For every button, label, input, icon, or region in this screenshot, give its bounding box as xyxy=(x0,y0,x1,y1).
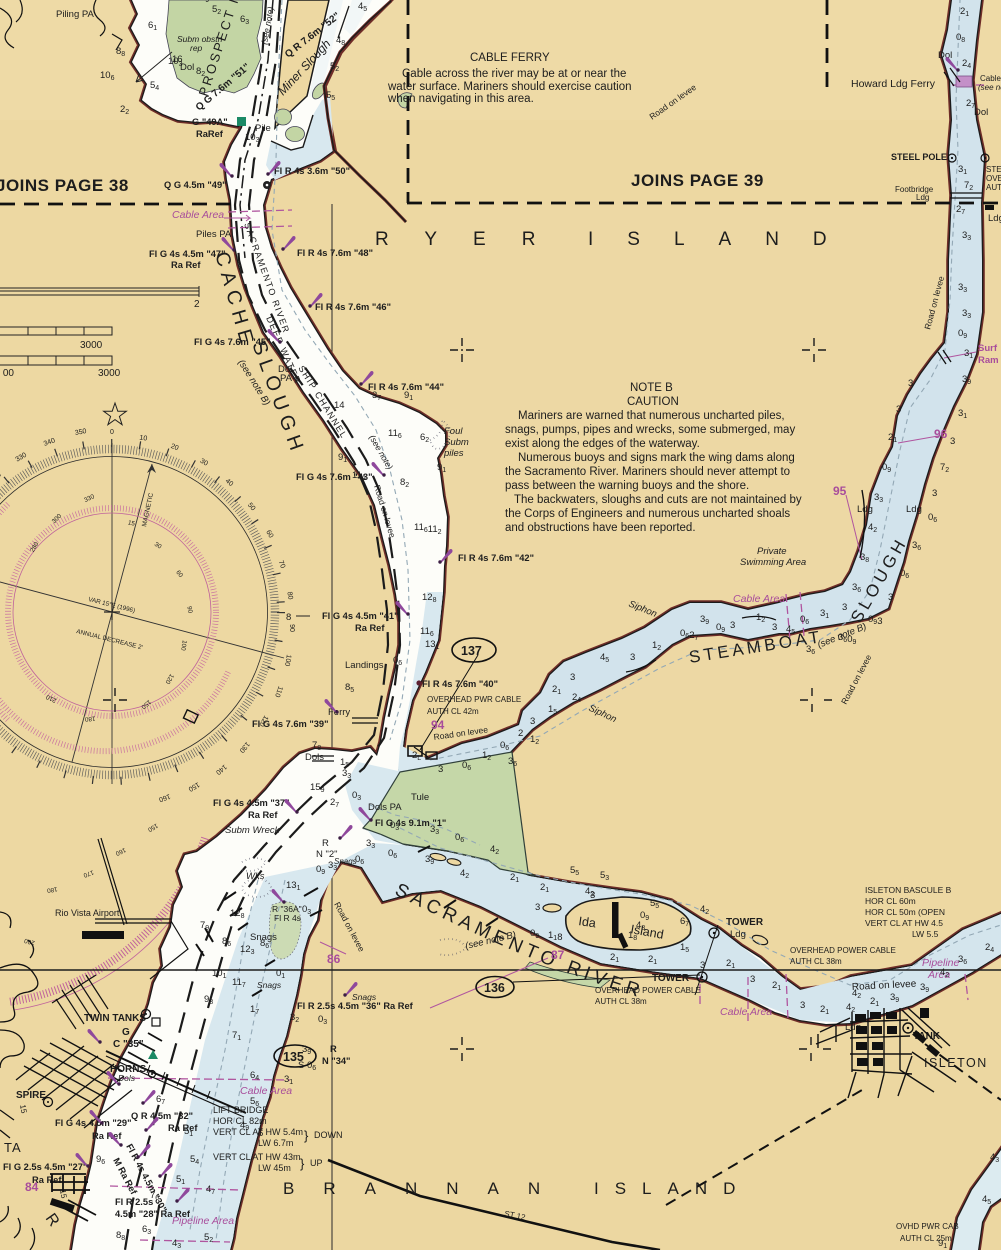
svg-text:CABLE FERRY: CABLE FERRY xyxy=(470,52,550,64)
svg-text:Cable across the river may be: Cable across the river may be at or near… xyxy=(402,68,626,80)
svg-text:R: R xyxy=(330,1044,337,1054)
svg-text:0: 0 xyxy=(110,429,114,436)
svg-text:Fl R 4s 7.6m "48": Fl R 4s 7.6m "48" xyxy=(297,248,373,258)
svg-text:Fl G 2.5s 4.5m "27": Fl G 2.5s 4.5m "27" xyxy=(3,1162,87,1172)
svg-text:Snags: Snags xyxy=(334,857,357,866)
svg-text:3: 3 xyxy=(535,902,540,913)
svg-text:Piling PA: Piling PA xyxy=(56,9,95,20)
svg-text:(see no: (see no xyxy=(978,83,1001,92)
svg-text:3: 3 xyxy=(888,592,893,603)
svg-text:Mariners are warned that num: Mariners are warned that numerous unchar… xyxy=(518,410,785,422)
svg-text:TOWER: TOWER xyxy=(652,973,690,984)
svg-text:Pipeline Area: Pipeline Area xyxy=(172,1215,234,1227)
svg-text:G: G xyxy=(122,1027,130,1038)
svg-text:Subm: Subm xyxy=(444,437,469,448)
svg-text:Foul: Foul xyxy=(444,426,463,437)
svg-text:Cable Area: Cable Area xyxy=(172,209,224,221)
svg-text:Ra Ref: Ra Ref xyxy=(248,810,278,820)
svg-text:Swimming Area: Swimming Area xyxy=(740,557,806,568)
svg-text:}: } xyxy=(304,1128,309,1143)
svg-text:96: 96 xyxy=(934,427,948,441)
svg-text:DOWN: DOWN xyxy=(314,1130,343,1140)
svg-text:10: 10 xyxy=(139,434,148,442)
svg-text:3: 3 xyxy=(730,620,735,631)
svg-text:Fl R 4s 7.6m "46": Fl R 4s 7.6m "46" xyxy=(315,302,391,312)
svg-text:JOINS PAGE 39: JOINS PAGE 39 xyxy=(631,171,764,190)
svg-text:RYER: RYER xyxy=(375,229,571,250)
svg-text:BRANNAN: BRANNAN xyxy=(283,1179,569,1198)
svg-text:ISLETON: ISLETON xyxy=(924,1056,988,1070)
svg-text:95: 95 xyxy=(833,484,847,498)
svg-text:3: 3 xyxy=(438,764,443,775)
svg-text:Snags: Snags xyxy=(250,932,277,943)
svg-text:}: } xyxy=(300,1156,305,1171)
svg-text:3: 3 xyxy=(590,890,595,901)
svg-text:ISLETON BASCULE B: ISLETON BASCULE B xyxy=(865,885,952,895)
svg-text:87: 87 xyxy=(551,948,565,962)
svg-text:Numerous buoys and signs mar: Numerous buoys and signs mark the wing d… xyxy=(518,452,795,464)
svg-text:CAUTION: CAUTION xyxy=(627,396,679,408)
svg-text:Ldg: Ldg xyxy=(988,213,1001,224)
svg-text:HORNS: HORNS xyxy=(110,1064,146,1075)
svg-text:R: R xyxy=(322,838,329,849)
svg-text:90: 90 xyxy=(288,624,295,632)
svg-text:OVERHEAD PWR CABLE: OVERHEAD PWR CABLE xyxy=(427,695,521,704)
svg-text:Ferry: Ferry xyxy=(328,707,350,718)
svg-text:AUTH CL 42m: AUTH CL 42m xyxy=(427,707,479,716)
svg-text:Cable Area: Cable Area xyxy=(733,593,785,605)
svg-text:Dols PA: Dols PA xyxy=(368,802,402,813)
svg-text:PA: PA xyxy=(280,373,293,384)
svg-text:3: 3 xyxy=(700,960,705,971)
svg-text:Fl G 4s 4.5m "29": Fl G 4s 4.5m "29" xyxy=(55,1118,132,1128)
svg-text:Ldg: Ldg xyxy=(916,193,929,202)
svg-text:137: 137 xyxy=(461,644,482,658)
svg-text:C "35": C "35" xyxy=(113,1039,144,1050)
svg-text:HOR CL 60m: HOR CL 60m xyxy=(865,896,916,906)
svg-text:TOWER: TOWER xyxy=(726,917,764,928)
svg-text:JOINS PAGE 38: JOINS PAGE 38 xyxy=(0,176,129,195)
svg-text:Pile: Pile xyxy=(255,123,271,134)
svg-text:TA: TA xyxy=(4,1140,22,1155)
svg-text:OVE: OVE xyxy=(986,174,1001,183)
svg-text:94: 94 xyxy=(431,718,445,732)
svg-text:the Sacramento River. Marine: the Sacramento River. Mariners should ne… xyxy=(505,466,790,478)
svg-text:STE: STE xyxy=(986,165,1001,174)
svg-text:Fl G 4s 4.5m "41": Fl G 4s 4.5m "41" xyxy=(322,611,399,621)
svg-text:OVHD PWR CAB: OVHD PWR CAB xyxy=(896,1222,959,1231)
svg-text:Ram: Ram xyxy=(978,355,999,366)
svg-text:Rio Vista Airport: Rio Vista Airport xyxy=(55,908,120,918)
svg-text:OVERHEAD POWER CABLE: OVERHEAD POWER CABLE xyxy=(595,986,701,995)
svg-text:HOR CL 50m (OPEN: HOR CL 50m (OPEN xyxy=(865,907,945,917)
svg-text:exist along the edges of the w: exist along the edges of the waterway. xyxy=(505,438,700,450)
svg-text:LW 5.5: LW 5.5 xyxy=(912,929,939,939)
svg-text:Ldg: Ldg xyxy=(857,504,873,515)
svg-text:8: 8 xyxy=(286,612,291,623)
svg-text:VERT CL AT HW 43m: VERT CL AT HW 43m xyxy=(213,1152,301,1162)
svg-text:Fl R 4s: Fl R 4s xyxy=(274,913,301,923)
svg-text:pass between the warning buoys: pass between the warning buoys and the s… xyxy=(505,480,749,492)
svg-text:water surface. Mariners shoul: water surface. Mariners should exercise … xyxy=(387,81,632,93)
svg-text:14: 14 xyxy=(334,400,345,411)
svg-text:Q G 4.5m "49": Q G 4.5m "49" xyxy=(164,180,227,190)
svg-text:3: 3 xyxy=(842,602,847,613)
svg-text:AUTH CL 38m: AUTH CL 38m xyxy=(790,957,842,966)
svg-text:3: 3 xyxy=(630,652,635,663)
svg-text:Dol: Dol xyxy=(974,107,988,118)
svg-text:The backwaters, sloughs and cu: The backwaters, sloughs and cuts are not… xyxy=(514,494,802,506)
svg-text:Ldg: Ldg xyxy=(730,929,746,940)
svg-text:Surf: Surf xyxy=(978,343,998,354)
svg-text:Q R 4.5m "32": Q R 4.5m "32" xyxy=(131,1111,193,1121)
svg-text:6: 6 xyxy=(258,1128,263,1139)
svg-text:86: 86 xyxy=(327,952,341,966)
svg-text:Footbridge: Footbridge xyxy=(895,185,934,194)
svg-text:Snags: Snags xyxy=(352,992,377,1002)
svg-text:LW 6.7m: LW 6.7m xyxy=(258,1138,293,1148)
svg-text:Fl G 4s 7.6m "39": Fl G 4s 7.6m "39" xyxy=(252,719,329,729)
svg-text:Howard Ldg Ferry: Howard Ldg Ferry xyxy=(851,78,936,90)
svg-text:Fl G 4s 7.6m "45": Fl G 4s 7.6m "45" xyxy=(194,337,271,347)
svg-text:piles: piles xyxy=(443,448,464,459)
svg-text:AUTH CL 25m: AUTH CL 25m xyxy=(900,1234,952,1243)
svg-text:Tule: Tule xyxy=(411,792,429,803)
svg-text:00: 00 xyxy=(3,368,15,379)
svg-text:3000: 3000 xyxy=(80,340,103,351)
svg-text:3: 3 xyxy=(800,1000,805,1011)
svg-text:84: 84 xyxy=(25,1180,39,1194)
svg-text:3: 3 xyxy=(896,404,901,415)
svg-text:AUTH CL 38m: AUTH CL 38m xyxy=(595,997,647,1006)
svg-text:Ra Ref: Ra Ref xyxy=(355,623,385,633)
svg-text:3: 3 xyxy=(772,622,777,633)
svg-text:LW 45m: LW 45m xyxy=(258,1163,291,1173)
svg-text:3: 3 xyxy=(570,672,575,683)
svg-text:AUT: AUT xyxy=(986,183,1001,192)
svg-text:rep: rep xyxy=(190,43,203,53)
svg-text:ISLAND: ISLAND xyxy=(594,1179,751,1198)
svg-text:N "34": N "34" xyxy=(322,1056,350,1066)
svg-text:3: 3 xyxy=(908,378,913,389)
svg-text:Ra Ref: Ra Ref xyxy=(171,260,201,270)
svg-text:Ldg: Ldg xyxy=(906,504,922,515)
svg-text:Ida: Ida xyxy=(578,914,597,930)
svg-text:Fl G 4s 4.5m "47": Fl G 4s 4.5m "47" xyxy=(149,249,226,259)
svg-text:Cable Area: Cable Area xyxy=(720,1006,772,1018)
svg-text:UP: UP xyxy=(310,1158,323,1168)
svg-text:3: 3 xyxy=(530,716,535,727)
svg-text:LIFT BRIDGE: LIFT BRIDGE xyxy=(213,1105,268,1115)
svg-text:Private: Private xyxy=(757,546,787,557)
svg-text:Fl R 4s 7.6m "42": Fl R 4s 7.6m "42" xyxy=(458,553,534,563)
svg-text:Snags: Snags xyxy=(257,980,282,990)
svg-text:the Corps of Engineers and num: the Corps of Engineers and numerous unch… xyxy=(505,508,790,520)
svg-text:Cable A: Cable A xyxy=(980,74,1001,83)
svg-text:STEEL POLE: STEEL POLE xyxy=(891,152,947,162)
svg-text:when navigating in this area.: when navigating in this area. xyxy=(387,93,534,105)
svg-text:136: 136 xyxy=(484,981,505,995)
svg-text:Ra Ref: Ra Ref xyxy=(92,1131,122,1141)
svg-text:Cable Area: Cable Area xyxy=(240,1085,292,1097)
svg-text:2: 2 xyxy=(518,728,523,739)
svg-text:Fl R 2.5s 4.5m "36" Ra Ref: Fl R 2.5s 4.5m "36" Ra Ref xyxy=(297,1001,414,1011)
svg-text:Fl G 4s 4.5m "37": Fl G 4s 4.5m "37" xyxy=(213,798,290,808)
svg-text:ISLAND: ISLAND xyxy=(588,229,861,250)
svg-text:2: 2 xyxy=(194,299,200,310)
svg-text:Fl G 4s 9.1m "1": Fl G 4s 9.1m "1" xyxy=(375,818,446,828)
svg-text:OVERHEAD POWER CABLE: OVERHEAD POWER CABLE xyxy=(790,946,896,955)
svg-text:3000: 3000 xyxy=(98,368,121,379)
svg-text:Fl R 4s 7.6m "40": Fl R 4s 7.6m "40" xyxy=(422,679,498,689)
svg-text:3: 3 xyxy=(932,488,937,499)
svg-text:Piles PA: Piles PA xyxy=(196,229,232,240)
svg-text:Subm Wreck: Subm Wreck xyxy=(225,825,281,836)
svg-text:snags, pumps, pipes and wrecks: snags, pumps, pipes and wrecks, some sub… xyxy=(505,424,795,436)
svg-text:80: 80 xyxy=(285,591,293,600)
svg-text:VERT CL AT HW 4.5: VERT CL AT HW 4.5 xyxy=(865,918,943,928)
svg-text:G "49A": G "49A" xyxy=(192,117,228,127)
svg-text:3: 3 xyxy=(750,974,755,985)
svg-text:RaRef: RaRef xyxy=(196,129,224,139)
svg-text:and obstructions have been rep: and obstructions have been reported. xyxy=(505,522,696,534)
svg-text:TWIN TANKS: TWIN TANKS xyxy=(84,1013,146,1024)
svg-text:Fl R 4s 3.6m "50": Fl R 4s 3.6m "50" xyxy=(274,166,350,176)
svg-text:Dols: Dols xyxy=(305,752,324,763)
svg-text:Dol: Dol xyxy=(938,50,952,61)
svg-text:NOTE B: NOTE B xyxy=(630,382,673,394)
svg-text:Fl R 2.5s: Fl R 2.5s xyxy=(115,1197,153,1207)
svg-text:180: 180 xyxy=(84,715,96,723)
svg-text:3: 3 xyxy=(950,436,955,447)
svg-text:Landings: Landings xyxy=(345,660,384,671)
svg-text:Wks: Wks xyxy=(246,871,265,882)
